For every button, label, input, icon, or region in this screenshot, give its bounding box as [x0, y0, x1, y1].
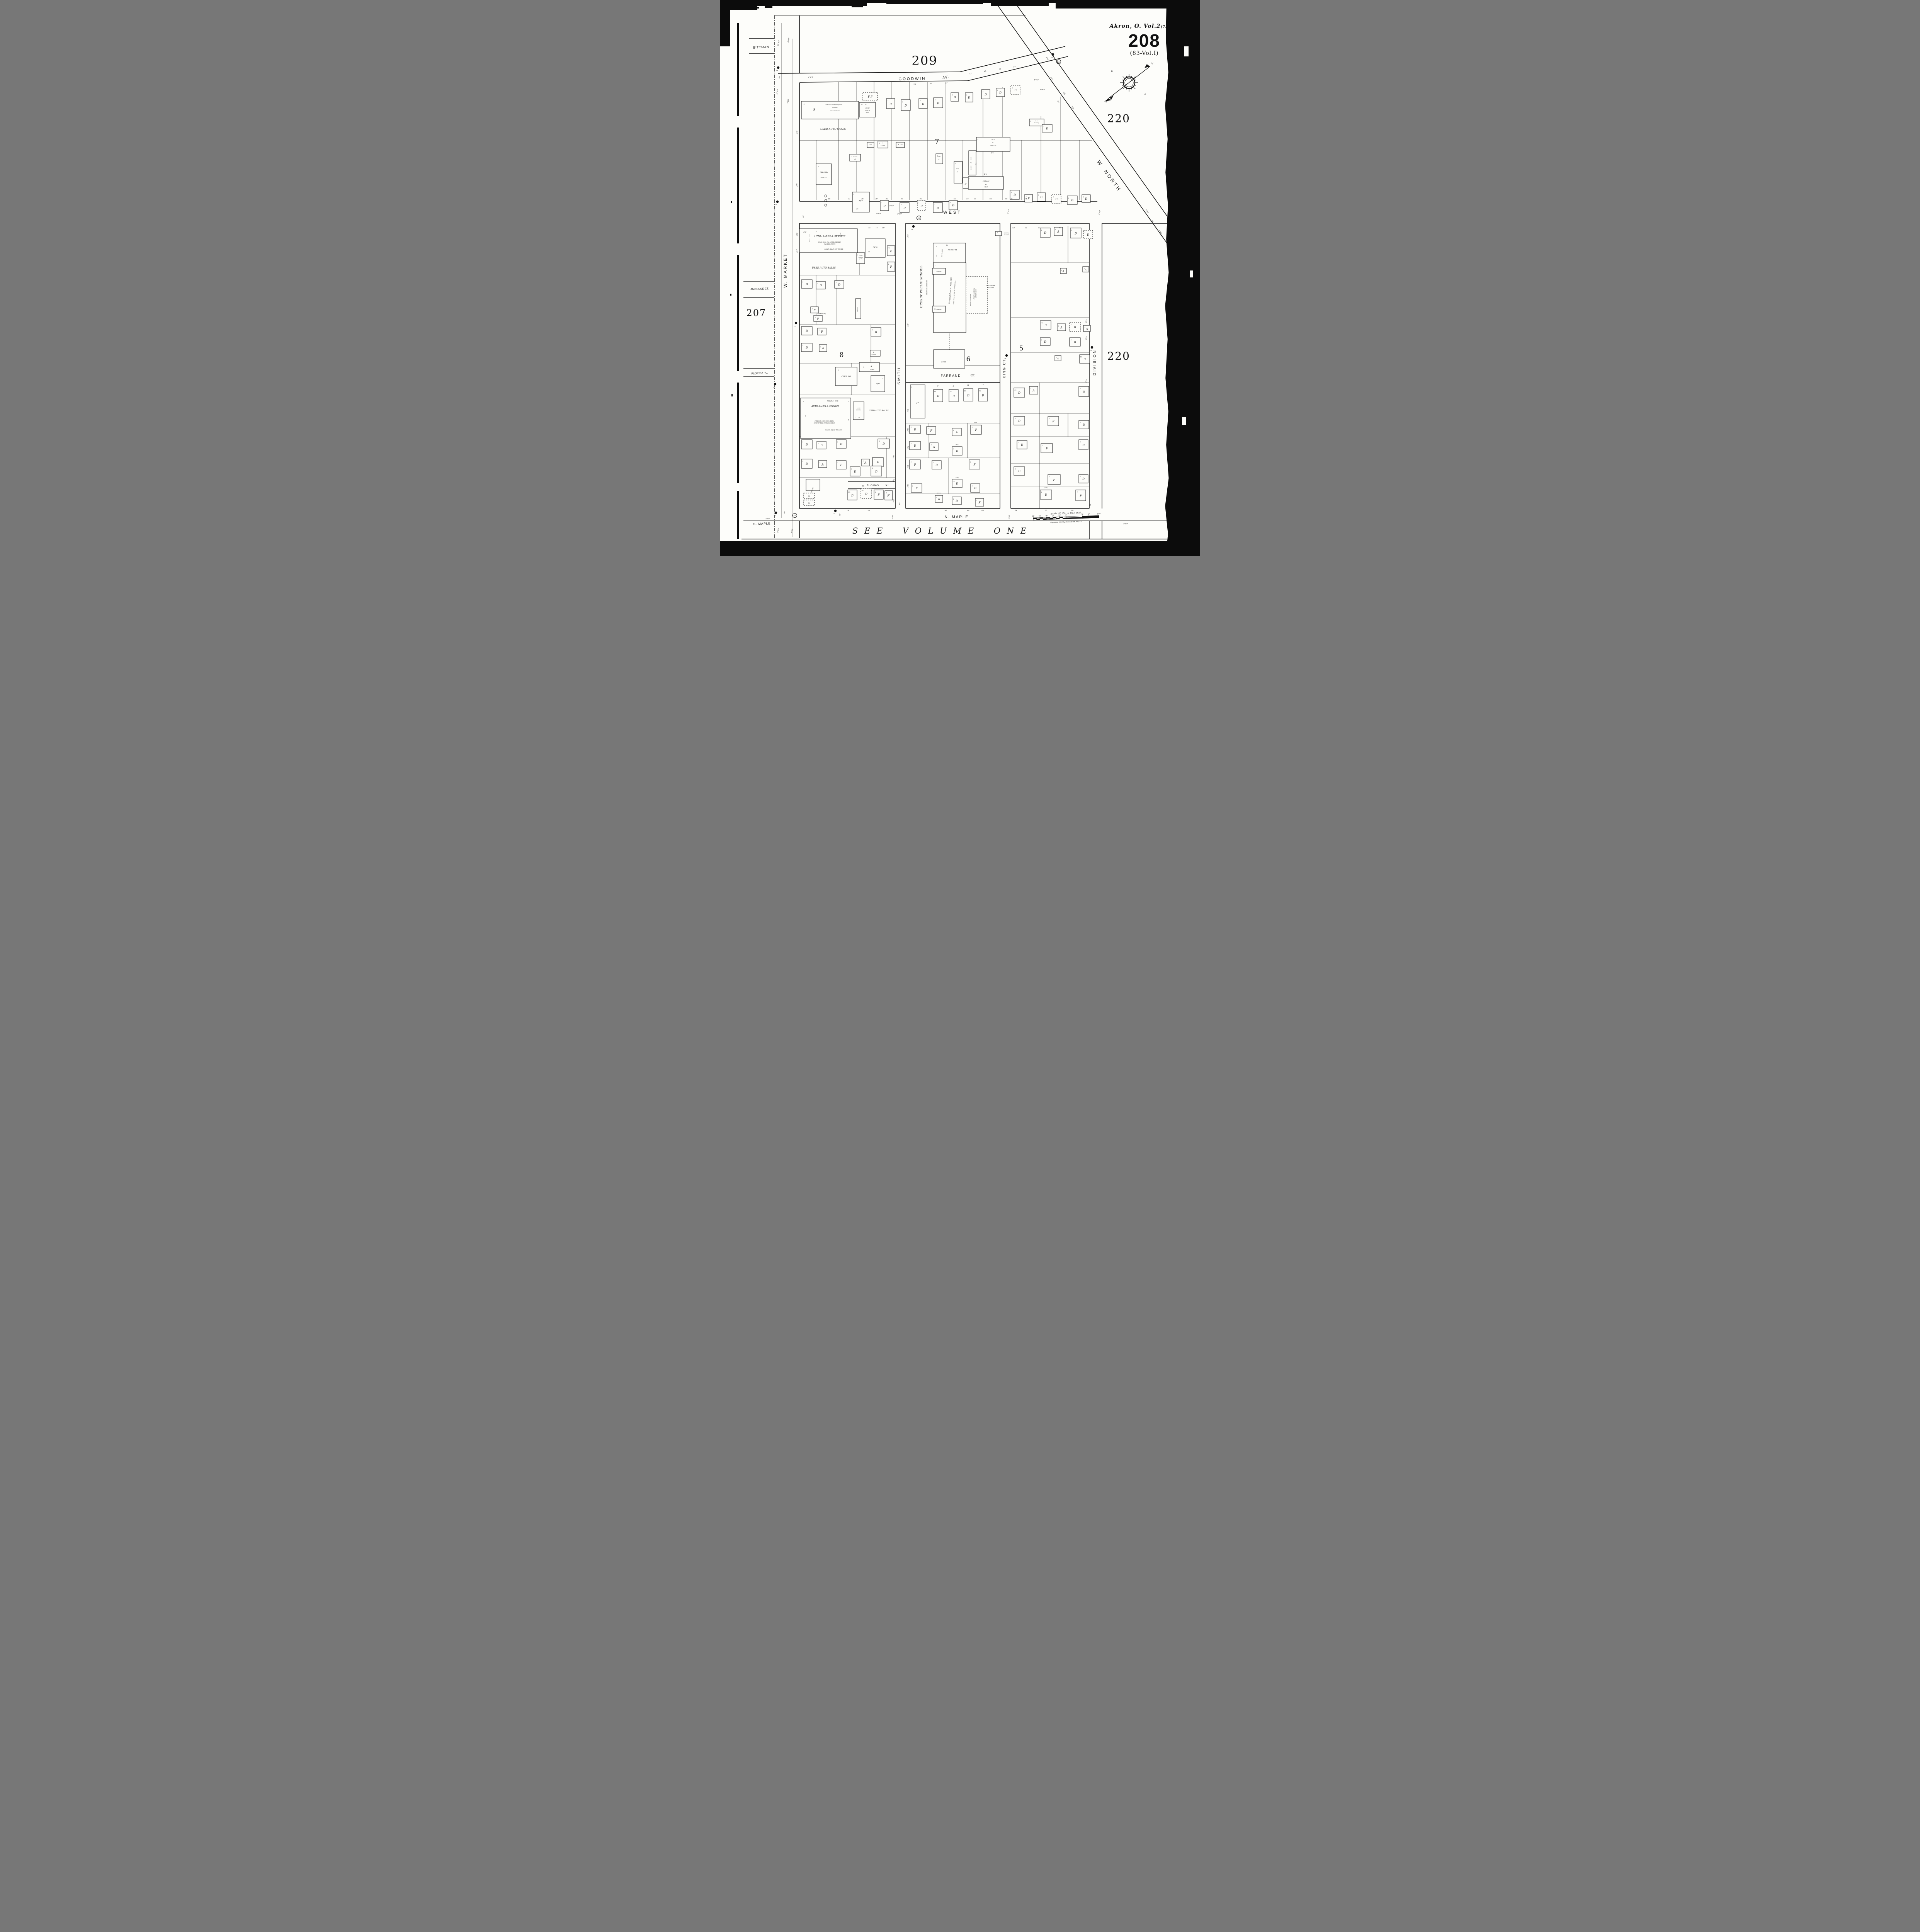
map-annotation: TILE — [984, 186, 988, 188]
map-annotation: 6"W.P — [1045, 56, 1049, 61]
street-line — [968, 56, 1068, 81]
building-label: D — [956, 482, 958, 485]
map-annotation: 2½ — [867, 251, 870, 253]
house-number: 201 — [906, 446, 910, 449]
street-label: CT. — [971, 374, 975, 377]
map-annotation: A. & — [1034, 120, 1037, 122]
map-annotation: 60' — [1057, 100, 1060, 103]
building-storey-count: 2 — [919, 100, 920, 102]
map-annotation: 50' — [1089, 503, 1091, 506]
building-label: A — [932, 446, 935, 449]
map-annotation: 6"W.P — [889, 205, 894, 207]
building-storey-count: 2 — [881, 202, 882, 204]
building-label: F F — [867, 95, 873, 99]
map-annotation: 1ST — [809, 234, 811, 237]
trolley-hanger-label: T.H — [775, 204, 777, 206]
map-annotation: 20' — [936, 255, 937, 257]
building-storey-count: 1 — [934, 99, 935, 101]
page-edge-left — [737, 128, 739, 243]
street-label: SMITH — [897, 367, 901, 384]
scale-bar-segment — [1036, 519, 1040, 520]
building-label: D — [1073, 341, 1076, 344]
map-annotation: BOOTH — [1004, 234, 1009, 236]
house-number: 235 — [906, 323, 910, 328]
house-number: 7 — [937, 385, 938, 388]
building-storey-count: 1½ — [934, 391, 936, 393]
map-annotation: 2 — [857, 254, 858, 256]
house-number: 9 — [952, 385, 954, 388]
map-annotation: 6"W.P — [1008, 515, 1010, 519]
building-label: S — [808, 502, 809, 505]
building-storey-count: 2 — [1014, 418, 1015, 420]
trolley-hanger-label: T.H — [1004, 358, 1006, 359]
house-number: 59 — [1038, 227, 1040, 229]
house-number: 70 — [1010, 198, 1012, 200]
building-storey-count: 1 — [953, 430, 954, 431]
map-annotation: (C.B.) — [859, 258, 862, 260]
building-storey-count: 2 — [1048, 476, 1049, 478]
map-annotation: 35' — [934, 308, 936, 310]
building-footprint — [859, 362, 879, 372]
map-annotation: STAIRS — [840, 233, 842, 237]
map-annotation: 1 — [855, 417, 855, 418]
building-footprint — [969, 151, 976, 175]
building-storey-count: 2 — [900, 204, 901, 206]
edge-speckle — [731, 201, 732, 203]
map-annotation: CROSBY PUBLIC SCHOOL — [920, 265, 923, 308]
map-annotation: 1 — [803, 401, 804, 403]
house-number: 11 — [967, 384, 969, 387]
building-storey-count: 2 — [802, 328, 803, 330]
building-storey-count: 2 — [887, 100, 888, 102]
building-storey-count: 2 — [835, 282, 836, 284]
building-label: D — [1018, 391, 1020, 395]
building-storey-count: 2 — [971, 485, 972, 487]
page-edge-top-chunk — [886, 0, 983, 4]
building-footprint — [870, 350, 880, 356]
map-annotation: 3 CARS — [881, 145, 885, 146]
building-storey-count: 2 — [1070, 324, 1071, 325]
compass-needle — [1108, 66, 1150, 99]
map-annotation: 16"W.P — [776, 528, 779, 534]
building-storey-count: 1 — [818, 330, 819, 331]
building-label: D — [1055, 198, 1058, 201]
building-storey-count: 1 — [927, 428, 928, 430]
map-annotation: 12"W.P — [777, 40, 779, 46]
page-edge-left — [737, 491, 739, 539]
map-annotation: (WOOD RF) — [832, 107, 838, 108]
map-annotation: 42¼ — [983, 173, 987, 175]
building-footprint — [933, 243, 966, 263]
house-number: 198 — [892, 455, 895, 459]
map-annotation: 4"W.P — [897, 213, 902, 215]
building-storey-count: 1 — [850, 156, 851, 157]
building-storey-count: 1½ — [1041, 322, 1042, 324]
trolley-hanger-symbol — [912, 225, 914, 228]
building-storey-count: 1 — [1061, 270, 1062, 271]
scale-bar-segment — [1033, 519, 1037, 520]
building-label: D — [865, 492, 867, 495]
map-canvas: F FD2D2D2D1D2D2D2D2D21D2121D2D2D2D2D111D… — [720, 0, 1200, 556]
street-label: GOODWIN — [898, 77, 926, 81]
house-number: 250 — [1070, 105, 1075, 110]
building-storey-count: 2 — [982, 91, 983, 93]
building-storey-count: 1 — [1025, 196, 1026, 197]
map-annotation: 6"W.P — [1040, 88, 1045, 90]
sheet-number: 208 — [1122, 30, 1167, 51]
map-annotation: CONC. RAMP 1ST TO 3RD — [824, 248, 843, 250]
building-label: D — [953, 96, 956, 99]
map-annotation: WASH'G — [856, 409, 861, 411]
building-storey-count: 2 — [969, 461, 971, 463]
building-storey-count: 2 — [1079, 388, 1080, 389]
map-annotation: 1-2 — [946, 245, 949, 246]
map-annotation: CONC FLS ON STEEL JOISTS — [825, 104, 842, 105]
fire-alarm-label: F.A. — [1057, 61, 1059, 63]
map-annotation: (C.B.) — [821, 465, 824, 466]
building-label: F — [816, 317, 819, 320]
trolley-hanger-symbol — [777, 66, 779, 69]
map-annotation: 2 — [847, 401, 849, 403]
map-annotation: CLUB HO — [841, 376, 851, 378]
map-annotation: HEAT HOT AIR DUCTS — [926, 280, 928, 295]
trolley-hanger-label: T.H — [833, 513, 835, 515]
street-label: W. MARKET — [783, 253, 788, 288]
building-storey-count: 1½ — [848, 491, 850, 493]
edge-speckle — [730, 294, 731, 296]
house-number: 15 — [981, 384, 984, 386]
building-storey-count: 2 — [1041, 230, 1042, 231]
building-label: D — [1040, 196, 1042, 199]
trolley-hanger-symbol — [794, 322, 797, 324]
street-line — [799, 81, 968, 82]
page-edge-bottom — [720, 541, 1200, 556]
building-label: D — [1020, 444, 1023, 447]
building-storey-count: 2 — [1079, 441, 1080, 443]
building-storey-count: 2 — [1052, 196, 1053, 198]
house-number: 192 — [892, 479, 895, 483]
house-number: 48 — [981, 510, 984, 512]
edge-speckle — [1184, 46, 1189, 56]
trolley-hanger-label: T.H — [1051, 57, 1053, 58]
building-label: D — [1082, 390, 1085, 393]
building-storey-count: 1 — [955, 163, 956, 165]
building-storey-count: 2 — [878, 143, 879, 144]
building-storey-count: 1 — [1083, 268, 1084, 270]
building-label: D — [1018, 470, 1020, 473]
building-label: A — [1032, 389, 1034, 392]
house-number: 22 — [847, 198, 850, 200]
house-number: 219 — [796, 233, 799, 237]
scale-bar-segment — [1046, 519, 1050, 520]
building-storey-count: 2 — [1070, 339, 1071, 341]
building-label: D — [956, 450, 958, 453]
map-annotation: 2½ — [856, 208, 858, 210]
trolley-hanger-symbol — [1090, 346, 1093, 349]
map-annotation: FILL'G STA — [820, 172, 828, 173]
map-annotation: 3 STALLS — [983, 180, 990, 182]
building-label: S — [808, 495, 809, 498]
building-footprint — [801, 398, 851, 439]
map-annotation: A — [970, 162, 972, 163]
map-annotation: Ap'ts — [872, 246, 878, 248]
map-annotation: 6"W.P — [891, 515, 893, 519]
house-number: 62 — [990, 198, 992, 200]
building-label: D — [937, 102, 939, 105]
building-label: A — [955, 431, 957, 434]
building-storey-count: 2 — [1079, 422, 1080, 423]
building-storey-count: 2 — [802, 345, 803, 346]
map-annotation: 26' — [848, 419, 849, 421]
building-storey-count: 2 — [802, 441, 803, 443]
building-storey-count: 2 — [871, 468, 872, 469]
building-footprint — [852, 192, 869, 212]
page-edge-left — [737, 255, 739, 371]
street-label: CT — [886, 484, 889, 486]
house-number: 193 — [906, 484, 909, 488]
map-annotation: BALC — [809, 238, 811, 242]
map-title: Akron, O. Vol.2(724) — [1110, 23, 1167, 29]
map-annotation: 16"W.P — [775, 89, 778, 95]
map-annotation: 8"W.P — [787, 37, 790, 43]
building-label: D — [913, 444, 916, 447]
trolley-hanger-symbol — [774, 383, 776, 385]
building-label: D — [984, 93, 987, 96]
building-storey-count: 1 — [1084, 327, 1085, 328]
trolley-hanger-symbol — [1005, 354, 1007, 357]
building-storey-count: 2 — [888, 264, 889, 265]
map-annotation: 4"W.P — [1034, 79, 1039, 81]
building-label: D — [1071, 199, 1073, 202]
sanborn-map-sheet: F FD2D2D2D1D2D2D2D2D21D2121D2D2D2D2D111D… — [720, 0, 1200, 556]
block-number: 5 — [1019, 345, 1023, 352]
gas-tank-symbol — [825, 204, 827, 206]
building-label: A — [1085, 327, 1088, 330]
map-annotation: UNDER GR'D — [975, 289, 977, 298]
house-number: 55 — [1025, 227, 1027, 229]
building-storey-count: 2 — [837, 462, 838, 464]
house-number: 251 — [906, 234, 910, 238]
building-label: D — [805, 346, 808, 349]
map-annotation: TILE — [991, 139, 995, 141]
building-label: D — [952, 204, 954, 207]
trolley-hanger-label: T.H — [911, 229, 913, 230]
house-number: 50 — [954, 198, 956, 200]
trolley-hanger-symbol — [776, 201, 778, 203]
building-label: D — [913, 428, 916, 431]
house-number: 68 — [1071, 510, 1073, 512]
building-storey-count: 2 — [1037, 194, 1039, 196]
map-annotation: GYM. — [941, 361, 946, 363]
map-annotation: DECK RF. TILE CURTAIN WALLS — [813, 422, 835, 424]
page-edge-corner — [720, 0, 730, 46]
compass-tick — [1133, 87, 1135, 89]
building-storey-count: 2 — [910, 461, 911, 463]
building-label: D — [922, 102, 924, 105]
street-label: KING CT. — [1002, 357, 1006, 378]
street-label: DIVISION — [1093, 349, 1097, 376]
scale-bar-segment — [1053, 518, 1056, 519]
building-storey-count: 2 — [901, 101, 903, 103]
map-annotation: 6"W.P — [1123, 523, 1128, 525]
adjacent-sheet-left: 207 — [747, 308, 767, 318]
map-annotation: Ap'ts — [858, 200, 863, 202]
street-label: W. NORTH — [1096, 159, 1122, 193]
building-storey-count: 1 — [818, 443, 818, 444]
house-number: 68 — [1005, 198, 1007, 200]
building-storey-count: 1 — [911, 386, 912, 388]
map-annotation: S — [813, 108, 815, 111]
building-label: D — [904, 104, 907, 107]
map-annotation: A — [862, 366, 864, 368]
map-annotation: 8"W.P — [876, 213, 881, 214]
map-annotation: 60' — [838, 513, 841, 516]
house-number: 271 — [796, 183, 799, 187]
map-annotation: 10 — [858, 417, 860, 418]
map-annotation: 60' — [783, 511, 786, 514]
building-label: D — [819, 284, 822, 287]
building-label: D — [981, 394, 984, 397]
building-label: A — [937, 498, 940, 501]
map-annotation: 2 — [803, 103, 804, 105]
building-storey-count: 2 — [837, 441, 838, 443]
building-storey-count: 1 — [930, 444, 931, 446]
building-footprint — [934, 350, 965, 368]
building-storey-count: 1½ — [952, 480, 954, 482]
trolley-hanger-symbol — [834, 510, 836, 512]
map-annotation: STAIRS — [936, 309, 942, 310]
page-edge-mark — [747, 7, 759, 9]
building-label: D — [937, 395, 939, 398]
edge-speckle — [731, 394, 733, 396]
building-label: D — [920, 204, 923, 207]
see-volume-note: S E E V O L U M E O N E — [809, 526, 1072, 536]
building-storey-count: 1½ — [1014, 389, 1016, 391]
building-storey-count: 2 — [932, 462, 934, 464]
building-label: D — [874, 331, 877, 334]
building-storey-count: 2 — [918, 202, 919, 204]
building-storey-count: 2 — [1017, 442, 1019, 444]
map-annotation: 6"W.P — [1098, 210, 1101, 215]
house-number: 29 — [913, 83, 916, 86]
house-number: 33 — [930, 83, 932, 85]
map-annotation: USED AUTO SALES — [869, 410, 889, 412]
map-annotation: A. — [956, 171, 958, 173]
building-storey-count: 2 — [802, 461, 803, 462]
building-label: D — [805, 443, 808, 446]
building-storey-count: 2 — [966, 94, 967, 96]
house-number: 260 — [1049, 76, 1054, 80]
page-edge-left — [737, 383, 739, 483]
map-annotation: 42½ — [990, 152, 994, 154]
building-storey-count: 2 — [1014, 468, 1015, 470]
map-annotation: A. — [985, 183, 986, 185]
building-storey-count: 1 — [1041, 339, 1042, 341]
building-label: D — [974, 487, 976, 490]
building-storey-count: 2 — [971, 427, 972, 428]
street-line — [778, 72, 960, 73]
building-label: A — [1084, 269, 1086, 271]
building-storey-count: 1 — [886, 492, 886, 494]
building-storey-count: 2½ — [887, 247, 889, 249]
fire-alarm-label: F.A. — [793, 515, 796, 517]
house-number: 74 — [1025, 198, 1027, 200]
map-annotation: (TILE) — [956, 168, 959, 170]
building-storey-count: 2 — [934, 204, 935, 206]
building-label: D — [1044, 340, 1046, 344]
building-label: D — [999, 91, 1002, 94]
house-number: 32 — [886, 198, 888, 200]
building-label: F' — [887, 494, 890, 497]
building-storey-count: 1½ — [949, 391, 951, 393]
building-storey-count: 1 — [976, 500, 977, 502]
map-annotation: STALLS — [857, 307, 859, 312]
map-annotation: AUTO SALES & SERVICE — [811, 405, 839, 408]
house-number: 54 — [966, 198, 969, 200]
building-footprint — [995, 231, 1002, 236]
house-number: 67 — [1059, 227, 1061, 229]
building-storey-count: 2 — [874, 492, 876, 493]
map-annotation: SHED — [900, 144, 903, 146]
street-label: AMBROSE CT. — [750, 287, 769, 291]
map-annotation: HYD.50'-1¼" HOSE-B. — [969, 294, 971, 306]
scale-tick-label: 40 — [1038, 515, 1041, 517]
building-label: D — [964, 183, 966, 185]
building-label: F' — [916, 401, 919, 405]
building-storey-count: 2 — [1041, 492, 1042, 493]
map-annotation: 3 STALLS — [990, 145, 997, 146]
street-label: AV. — [942, 75, 949, 80]
building-storey-count: 2 — [1011, 87, 1012, 89]
street-label: N. MAPLE — [944, 515, 969, 519]
building-label: A — [821, 347, 824, 350]
building-storey-count: 2½ — [861, 490, 863, 492]
building-label: D — [935, 464, 938, 467]
building-label: D — [967, 394, 969, 397]
map-annotation: ASH HOPPER — [986, 285, 995, 286]
trolley-hanger-label: T.H — [774, 515, 775, 517]
house-number: 42 — [919, 198, 922, 200]
building-storey-count: 1 — [953, 498, 954, 500]
compass-north-label: N — [1150, 62, 1153, 65]
house-number: 205 — [906, 428, 910, 432]
building-storey-count: 2 — [1010, 192, 1012, 193]
building-storey-count: 1 — [811, 308, 812, 310]
building-storey-count: 1 — [1030, 388, 1031, 389]
map-annotation: 182 — [1087, 512, 1090, 516]
building-storey-count: 1 — [1084, 232, 1085, 233]
map-annotation: 1 — [935, 246, 936, 248]
map-annotation: 2 — [881, 378, 883, 379]
map-annotation: (B.F.) — [956, 444, 958, 445]
building-storey-count: 1 — [862, 461, 863, 462]
building-label: D — [838, 283, 840, 286]
map-annotation: PRINT'G - 2ND — [827, 400, 838, 402]
street-label: FLORIDA PL. — [751, 372, 768, 375]
map-annotation: A — [882, 142, 883, 144]
building-storey-count: 2 — [816, 283, 818, 284]
edge-speckle — [1190, 270, 1193, 277]
trolley-hanger-symbol — [1051, 53, 1054, 56]
house-number: 44 — [967, 510, 969, 512]
compass-east-label: E — [1144, 93, 1146, 95]
block-number: 6 — [966, 355, 970, 363]
building-label: D — [955, 500, 958, 503]
building-label: D — [952, 395, 955, 398]
map-annotation: 3 CARS — [871, 354, 876, 355]
map-annotation: 18' — [804, 415, 806, 417]
map-annotation: STEEL FR CONC. FLS. STEEL — [815, 420, 833, 422]
